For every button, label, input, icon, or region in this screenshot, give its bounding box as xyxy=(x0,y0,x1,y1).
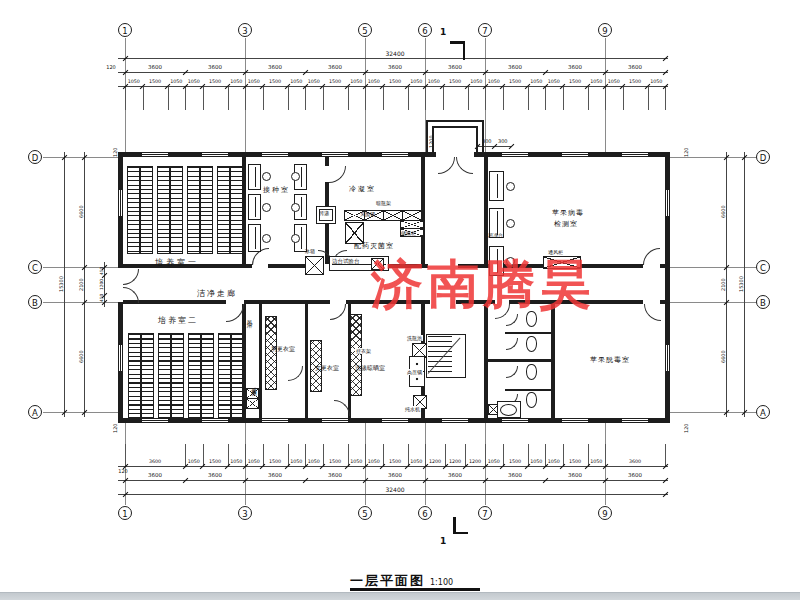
dimension-text: 1500 xyxy=(569,459,581,464)
culture-rack xyxy=(230,166,243,254)
room-label: 挂衣架 xyxy=(355,348,372,354)
room-label: 洁净走廊 xyxy=(197,288,237,299)
dimension-text: 1050 xyxy=(530,459,542,464)
dimension-text: 3600 xyxy=(149,459,161,464)
dimension-text: 1500 xyxy=(569,79,581,84)
room-label: 检测室 xyxy=(554,219,578,229)
extension-line xyxy=(125,444,126,466)
dimension-text: 1050 xyxy=(308,459,320,464)
dimension-text: 1050 xyxy=(290,79,302,84)
dim-tick xyxy=(508,144,514,150)
dimension-text: 3600 xyxy=(148,472,162,478)
extension-line xyxy=(665,444,666,466)
room-label: 储藏柜 xyxy=(401,230,416,236)
dimension-text: 1050 xyxy=(350,459,362,464)
stool xyxy=(506,219,515,228)
window xyxy=(119,345,122,371)
dim-line xyxy=(118,480,668,481)
extension-line xyxy=(588,86,589,110)
grid-bubble: A xyxy=(756,405,770,419)
dimension-text: 1050 xyxy=(650,79,662,84)
window xyxy=(202,419,228,422)
extension-line xyxy=(288,444,289,466)
window xyxy=(666,345,669,371)
extension-line xyxy=(503,444,504,466)
dimension-text: 1050 xyxy=(428,79,440,84)
dimension-text: 3600 xyxy=(328,472,342,478)
grid-bubble: 3 xyxy=(238,506,252,520)
room-label: 苹果脱毒室 xyxy=(590,355,630,365)
extension-line xyxy=(245,86,246,110)
dim-line xyxy=(64,152,65,417)
dim-line xyxy=(84,152,85,417)
extension-line xyxy=(228,86,229,110)
extension-line xyxy=(425,444,426,466)
culture-rack xyxy=(170,166,183,254)
extension-line xyxy=(383,444,384,466)
wall xyxy=(426,120,428,154)
extension-line xyxy=(348,444,349,466)
dimension-text: 1500 xyxy=(509,459,521,464)
grid-bubble: 1 xyxy=(118,506,132,520)
dimension-text: 3600 xyxy=(568,64,582,70)
culture-rack xyxy=(141,333,154,418)
bench xyxy=(489,171,504,201)
dimension-text: 450 xyxy=(99,294,104,302)
extension-line xyxy=(305,86,306,110)
window xyxy=(562,419,588,422)
dimension-text: 1050 xyxy=(248,459,260,464)
extension-line xyxy=(143,86,144,110)
dimension-text: 3600 xyxy=(388,472,402,478)
extension-line xyxy=(445,444,446,466)
extension-line xyxy=(263,444,264,466)
room-label: 苹果病毒 xyxy=(552,208,584,218)
dimension-text: 3600 xyxy=(268,64,282,70)
dimension-text: 1200 xyxy=(469,459,481,464)
door-swing-arc xyxy=(456,157,473,174)
dimension-text: 3600 xyxy=(328,64,342,70)
section-marker-bar xyxy=(453,532,468,535)
grid-bubble: 5 xyxy=(358,506,372,520)
drawing-title-block: 一层平面图1:100 xyxy=(350,570,453,590)
dimension-text: 6600 xyxy=(720,350,726,363)
window xyxy=(262,419,288,422)
dimension-text: 32400 xyxy=(385,50,404,57)
toilet-fixture xyxy=(526,336,537,352)
window xyxy=(666,190,669,216)
grid-bubble: B xyxy=(28,295,42,309)
room-label: 高压锅 xyxy=(406,369,423,375)
dimension-text: 1500 xyxy=(329,79,341,84)
grid-bubble: B xyxy=(756,295,770,309)
door-swing-arc xyxy=(506,366,518,378)
wall xyxy=(505,389,551,391)
window xyxy=(622,419,648,422)
dimension-text: 1200 xyxy=(99,279,104,290)
dim-line xyxy=(43,157,118,158)
dimension-text: 120 xyxy=(683,423,689,433)
culture-rack xyxy=(140,166,153,254)
dimension-text: 1050 xyxy=(308,79,320,84)
wall xyxy=(432,126,434,154)
section-marker-bar xyxy=(463,41,466,60)
room-label: 男更衣室 xyxy=(271,345,295,354)
room-label: 300 xyxy=(482,138,492,144)
room-label: 灭菌锅 xyxy=(360,211,375,217)
dimension-text: 1050 xyxy=(368,459,380,464)
dimension-text: 1500 xyxy=(449,79,461,84)
extension-line xyxy=(605,444,606,466)
dimension-text: 1500 xyxy=(269,459,281,464)
room-label-vertical: 手消毒池 xyxy=(251,383,257,387)
room-label: 女更衣室 xyxy=(315,364,339,373)
dimension-text: 1050 xyxy=(530,79,542,84)
dimension-text: 1050 xyxy=(590,459,602,464)
dimension-text: 1500 xyxy=(389,79,401,84)
dimension-text: 1050 xyxy=(548,79,560,84)
dim-line xyxy=(43,302,118,303)
dimension-text: 1050 xyxy=(230,459,242,464)
window xyxy=(442,419,468,422)
room-label: 配药灭菌室 xyxy=(354,241,394,251)
dim-line xyxy=(118,494,668,495)
bench xyxy=(248,224,261,252)
extension-line xyxy=(665,86,666,110)
extension-line xyxy=(563,86,564,110)
culture-rack xyxy=(188,333,201,418)
stool xyxy=(262,203,271,212)
dimension-text: 32400 xyxy=(385,486,404,493)
window xyxy=(622,153,648,156)
dimension-text: 1500 xyxy=(509,79,521,84)
wash-basin xyxy=(500,404,517,416)
extension-line xyxy=(365,444,366,466)
extension-line xyxy=(528,444,529,466)
equipment-box xyxy=(246,398,259,409)
extension-line xyxy=(563,444,564,466)
grid-bubble: A xyxy=(28,405,42,419)
grid-bubble: 9 xyxy=(598,506,612,520)
dimension-text: 3600 xyxy=(628,472,642,478)
wall xyxy=(259,304,262,418)
dimension-text: 3600 xyxy=(268,472,282,478)
grid-bubble: 7 xyxy=(478,506,492,520)
extension-line xyxy=(588,444,589,466)
room-label: 洗瓶池 xyxy=(406,335,423,341)
toilet-fixture xyxy=(526,364,537,380)
culture-rack xyxy=(217,166,230,254)
grid-bubble: 6 xyxy=(418,23,432,37)
extension-line xyxy=(503,86,504,110)
grid-bubble: C xyxy=(28,260,42,274)
dimension-text: 2100 xyxy=(78,278,84,291)
window xyxy=(142,419,168,422)
wall xyxy=(505,332,551,334)
door-swing-arc xyxy=(329,166,346,183)
extension-line xyxy=(485,444,486,466)
grid-bubble: 3 xyxy=(238,23,252,37)
title-underline-thick xyxy=(350,588,480,591)
dimension-text: 15300 xyxy=(738,276,744,292)
grid-bubble: 7 xyxy=(478,23,492,37)
dimension-text: 1050 xyxy=(350,79,362,84)
dimension-text: 3600 xyxy=(568,472,582,478)
wall xyxy=(482,120,484,154)
extension-line xyxy=(263,86,264,110)
extension-line xyxy=(443,86,444,110)
dimension-text: 1500 xyxy=(269,79,281,84)
dimension-text: 6600 xyxy=(720,205,726,218)
culture-rack xyxy=(127,166,140,254)
window xyxy=(262,153,288,156)
window xyxy=(142,153,168,156)
room-label: 冷凝室 xyxy=(349,184,376,194)
window xyxy=(322,153,348,156)
grid-bubble: D xyxy=(756,150,770,164)
dimension-text: 1050 xyxy=(470,79,482,84)
dim-line xyxy=(726,152,727,417)
extension-line xyxy=(383,86,384,110)
culture-rack xyxy=(201,333,214,418)
wall xyxy=(305,304,308,418)
stool xyxy=(262,234,271,243)
dimension-text: 1050 xyxy=(290,459,302,464)
dimension-text: 1050 xyxy=(410,79,422,84)
dimension-text: 450 xyxy=(99,267,104,275)
grid-bubble: 9 xyxy=(598,23,612,37)
dimension-text: 1050 xyxy=(248,79,260,84)
drawing-scale: 1:100 xyxy=(430,578,453,587)
door-swing-arc xyxy=(506,314,518,326)
dimension-text: 120 xyxy=(106,64,116,70)
dimension-text: 1200 xyxy=(449,459,461,464)
wall xyxy=(426,120,484,122)
door-swing-arc xyxy=(123,287,139,303)
door-swing-arc xyxy=(330,304,346,320)
window xyxy=(119,190,122,216)
culture-rack xyxy=(218,333,231,418)
dimension-text: 1050 xyxy=(608,79,620,84)
room-label-vertical: 风淋 xyxy=(247,316,254,318)
extension-line xyxy=(485,86,486,110)
extension-line xyxy=(465,444,466,466)
door-swing-arc xyxy=(643,248,660,265)
section-marker-label: 1 xyxy=(440,27,446,37)
dimension-text: 3600 xyxy=(628,64,642,70)
dimension-text: 3600 xyxy=(508,64,522,70)
footer-bar xyxy=(0,592,800,600)
extension-line xyxy=(168,86,169,110)
room-label: 边台试验台 xyxy=(332,258,360,265)
extension-line xyxy=(348,86,349,110)
toilet-fixture xyxy=(526,392,537,408)
bench xyxy=(248,194,261,220)
dimension-text: 1050 xyxy=(188,459,200,464)
stool xyxy=(262,172,271,181)
window xyxy=(202,153,228,156)
dimension-text: 6600 xyxy=(78,350,84,363)
dimension-text: 3600 xyxy=(508,472,522,478)
dim-line xyxy=(118,72,668,73)
dimension-text: 1050 xyxy=(410,459,422,464)
extension-line xyxy=(203,444,204,466)
extension-line xyxy=(185,86,186,110)
dimension-text: 3600 xyxy=(208,64,222,70)
stool xyxy=(291,234,300,243)
dimension-text: 120 xyxy=(118,468,128,474)
extension-line xyxy=(185,444,186,466)
dimension-text: 1500 xyxy=(389,459,401,464)
extension-line xyxy=(288,86,289,110)
culture-rack xyxy=(231,333,244,418)
dim-line xyxy=(43,412,118,413)
extension-line xyxy=(245,444,246,466)
section-marker-label: 1 xyxy=(440,536,446,546)
room-label: 冰箱 xyxy=(305,248,315,254)
window xyxy=(322,419,348,422)
dimension-text: 1500 xyxy=(629,79,641,84)
culture-rack xyxy=(128,333,141,418)
room-label: 传递 xyxy=(319,210,329,216)
culture-rack xyxy=(158,333,171,418)
room-label: 培养室二 xyxy=(158,315,198,326)
room-label: 洗涤晾晒室 xyxy=(355,364,385,373)
room-label: 培养室一 xyxy=(155,257,199,268)
dimension-text: 120 xyxy=(112,423,118,433)
extension-line xyxy=(203,86,204,110)
dimension-text: 3600 xyxy=(148,64,162,70)
door-swing-arc xyxy=(438,157,455,174)
wall xyxy=(432,126,478,128)
dimension-text: 1050 xyxy=(488,79,500,84)
dimension-text: 1500 xyxy=(209,459,221,464)
window xyxy=(562,153,588,156)
dim-line xyxy=(744,152,745,417)
wall xyxy=(488,359,551,362)
door-swing-arc xyxy=(506,338,518,350)
wall xyxy=(551,304,555,418)
extension-line xyxy=(408,444,409,466)
grid-bubble: C xyxy=(756,260,770,274)
dimension-text: 2100 xyxy=(720,278,726,291)
dim-line xyxy=(118,58,668,59)
window xyxy=(382,419,408,422)
dimension-text: 3600 xyxy=(388,64,402,70)
dimension-text: 1050 xyxy=(590,79,602,84)
extension-line xyxy=(468,86,469,110)
dimension-text: 1500 xyxy=(329,459,341,464)
dimension-text: 6600 xyxy=(78,205,84,218)
extension-line xyxy=(545,444,546,466)
locker-rack xyxy=(350,314,362,396)
dimension-text: 3600 xyxy=(629,459,641,464)
dimension-text: 15300 xyxy=(58,276,64,292)
window xyxy=(502,419,528,422)
extension-line xyxy=(323,444,324,466)
extension-line xyxy=(425,86,426,110)
dimension-text: 3600 xyxy=(448,472,462,478)
stool xyxy=(506,182,515,191)
room-label: 晾瓶架 xyxy=(376,200,391,206)
wall xyxy=(484,157,488,264)
dimension-text: 1500 xyxy=(209,79,221,84)
window xyxy=(502,153,528,156)
dimension-text: 1050 xyxy=(128,79,140,84)
dimension-text: 1050 xyxy=(488,459,500,464)
dimension-text: 3600 xyxy=(448,64,462,70)
culture-rack xyxy=(157,166,170,254)
door-swing-arc xyxy=(644,304,661,321)
extension-line xyxy=(648,86,649,110)
grid-bubble: 1 xyxy=(118,23,132,37)
culture-rack xyxy=(171,333,184,418)
room-label: 300 xyxy=(498,138,508,144)
wall xyxy=(476,126,478,154)
door-swing-arc xyxy=(288,366,303,381)
room-label: 超净台 xyxy=(488,232,503,238)
dimension-text: 1050 xyxy=(548,459,560,464)
extension-line xyxy=(228,444,229,466)
watermark-text: 济南腾昊 xyxy=(371,256,595,313)
stool xyxy=(291,203,300,212)
grid-bubble: 6 xyxy=(418,506,432,520)
grid-bubble: D xyxy=(28,150,42,164)
room-label: 接种室 xyxy=(263,185,290,195)
dimension-text: 1050 xyxy=(368,79,380,84)
door-swing-arc xyxy=(123,269,139,285)
dimension-text: 1050 xyxy=(230,79,242,84)
grid-bubble: 5 xyxy=(358,23,372,37)
dimension-text: 1200 xyxy=(429,459,441,464)
dimension-text: 3600 xyxy=(208,472,222,478)
extension-line xyxy=(545,86,546,110)
dimension-text: 1050 xyxy=(188,79,200,84)
bench xyxy=(248,164,261,190)
extension-line xyxy=(528,86,529,110)
extension-line xyxy=(605,86,606,110)
extension-line xyxy=(365,86,366,110)
extension-line xyxy=(125,86,126,110)
extension-line xyxy=(408,86,409,110)
room-label: 纯水机 xyxy=(404,406,421,412)
extension-line xyxy=(305,444,306,466)
dimension-text: 120 xyxy=(683,147,689,157)
dim-line xyxy=(43,267,118,268)
dimension-text: 1500 xyxy=(149,79,161,84)
extension-line xyxy=(323,86,324,110)
culture-rack xyxy=(200,166,213,254)
drawing-title: 一层平面图 xyxy=(350,573,425,588)
dimension-text: 1050 xyxy=(170,79,182,84)
window xyxy=(382,153,408,156)
cad-drawing-page: 113355667799DDCCBBAA32400360036003600360… xyxy=(0,0,800,600)
stool xyxy=(291,172,300,181)
equipment-box xyxy=(305,256,324,275)
culture-rack xyxy=(187,166,200,254)
extension-line xyxy=(623,86,624,110)
